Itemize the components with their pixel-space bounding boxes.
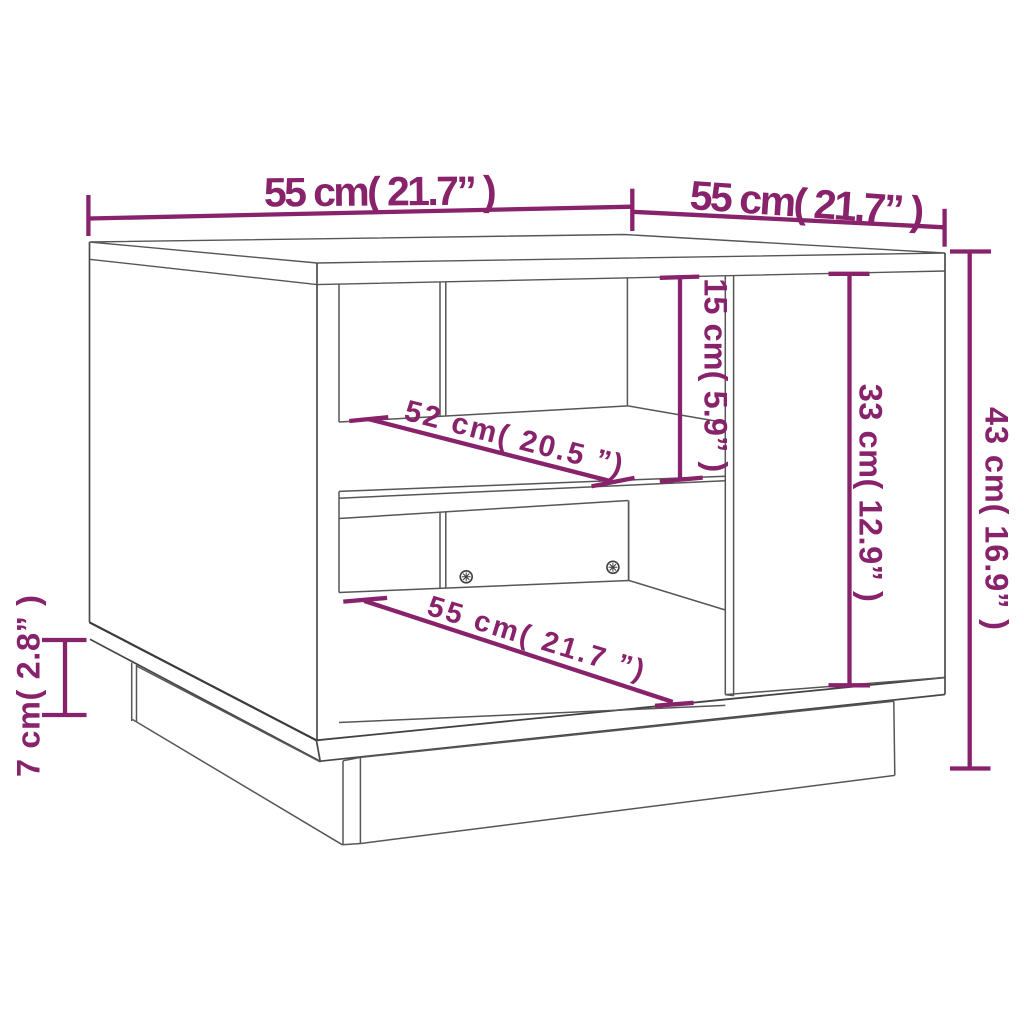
svg-text:7 cm( 2.8” ): 7 cm( 2.8” ) xyxy=(11,595,47,777)
svg-text:43 cm( 16.9” ): 43 cm( 16.9” ) xyxy=(979,407,1015,630)
svg-text:33 cm( 12.9” ): 33 cm( 12.9” ) xyxy=(853,384,889,602)
svg-text:15 cm( 5.9” ): 15 cm( 5.9” ) xyxy=(698,278,734,472)
svg-text:55 cm( 21.7” ): 55 cm( 21.7” ) xyxy=(264,167,496,215)
